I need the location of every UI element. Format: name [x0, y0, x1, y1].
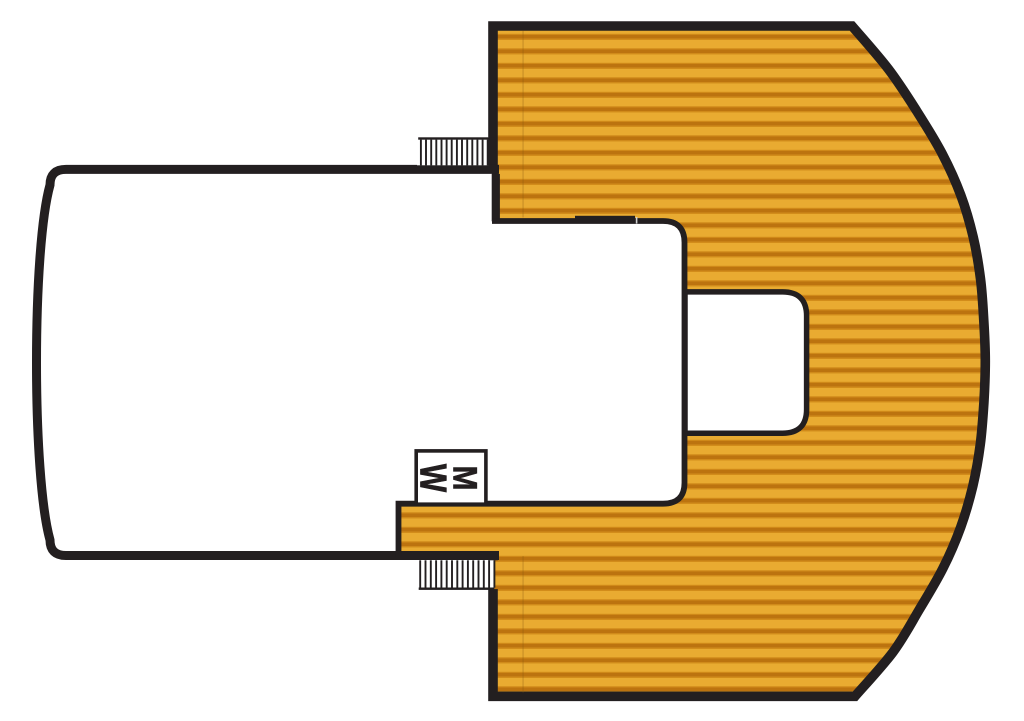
svg-text:M: M — [446, 466, 483, 491]
